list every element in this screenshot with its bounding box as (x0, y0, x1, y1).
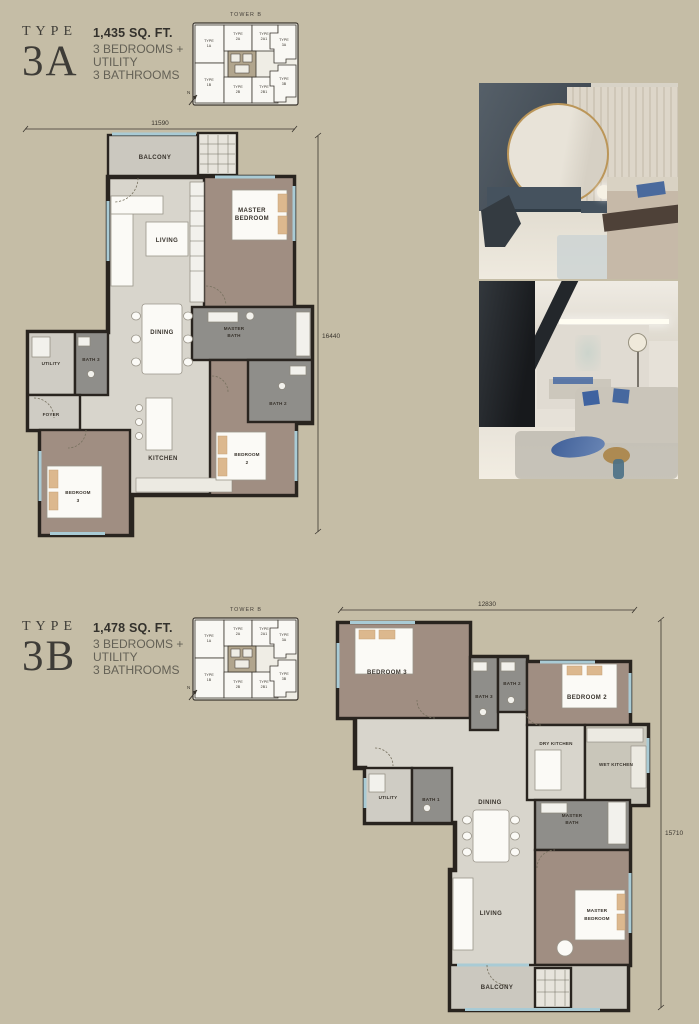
label-utility: UTILITY (42, 361, 61, 366)
unit-3b-code: 3B (282, 677, 287, 681)
toilet (480, 709, 487, 716)
floor-lamp-head (628, 333, 647, 352)
label-bedroom3: BEDROOM 3 (367, 670, 407, 676)
sink (501, 662, 515, 671)
stair-box (235, 660, 249, 668)
unit-3a-label: TYPE (279, 38, 289, 42)
unit-1a-code: 1A (207, 639, 212, 643)
lift-box (243, 54, 252, 62)
label-foyer: FOYER (43, 412, 60, 417)
unit-3a-code: 3A (282, 638, 287, 642)
kitchen-island (535, 750, 561, 790)
tower-label: TOWER B (230, 607, 262, 613)
vanity-sink (541, 803, 567, 813)
label-bath3: BATH 3 (82, 357, 100, 362)
living-room-photo (479, 281, 678, 479)
type-code-b: 3B (22, 635, 76, 678)
north-label: N (187, 90, 190, 95)
label-master-bedroom: MASTER (238, 208, 266, 214)
sofa-pillow (612, 388, 629, 404)
dim-right-3a: 16440 (322, 333, 340, 340)
sink (473, 662, 487, 671)
svg-text:BEDROOM: BEDROOM (584, 916, 609, 921)
unit-3b-label: TYPE (279, 672, 289, 676)
unit-1a-code: 1A (207, 44, 212, 48)
label-balcony: BALCONY (139, 155, 171, 161)
label-utility: UTILITY (379, 795, 398, 800)
washer (369, 774, 385, 792)
unit-1b-label: TYPE (204, 78, 214, 82)
dining-table (473, 810, 509, 862)
unit-2a1-label: TYPE (259, 32, 269, 36)
toilet (508, 697, 515, 704)
stair-box (235, 65, 249, 73)
unit-1b-code: 1B (207, 678, 212, 682)
label-dining: DINING (478, 800, 501, 806)
bathtub (608, 802, 626, 844)
label-master-bedroom: MASTER (587, 908, 608, 913)
wet-kitchen-counter (631, 746, 646, 788)
unit-3b-code: 3B (282, 82, 287, 86)
bathtub (296, 312, 310, 356)
label-living: LIVING (156, 238, 178, 244)
north-label: N (187, 685, 190, 690)
unit-3a-label: TYPE (279, 633, 289, 637)
label-bedroom2: BEDROOM (234, 452, 259, 457)
unit-2a-code: 2A (236, 37, 241, 41)
lift-box (231, 649, 240, 657)
unit-2b-code: 2B (236, 90, 241, 94)
toilet (88, 371, 95, 378)
lift-box (243, 649, 252, 657)
vanity-sink (208, 312, 238, 322)
bed (607, 191, 678, 279)
svg-text:BATH: BATH (565, 820, 579, 825)
tower-label: TOWER B (230, 12, 262, 18)
floorplan-3a: 11590 16440 (20, 116, 350, 550)
dining-table (142, 304, 182, 374)
toilet (424, 805, 431, 812)
label-master-bath: MASTER (224, 326, 245, 331)
unit-2b1-label: TYPE (259, 85, 269, 89)
label-bath2: BATH 2 (269, 401, 287, 406)
floorplan-3b: 12830 15710 (335, 598, 699, 1024)
dim-right-3b: 15710 (665, 830, 683, 837)
label-balcony: BALCONY (481, 985, 513, 991)
label-wet-kitchen: WET KITCHEN (599, 762, 634, 767)
unit-2b1-code: 2B1 (261, 685, 268, 689)
wardrobe (190, 182, 204, 302)
label-living: LIVING (480, 911, 502, 917)
dining-bench (553, 377, 593, 384)
glass-vase (613, 459, 624, 479)
unit-2b-code: 2B (236, 685, 241, 689)
label-bath1: BATH 1 (422, 797, 440, 802)
unit-2b-label: TYPE (233, 85, 243, 89)
dim-top-3b: 12830 (478, 601, 496, 608)
label-master-bath: MASTER (562, 813, 583, 818)
sofa-pillow (582, 390, 600, 406)
trellis (535, 968, 571, 1008)
room-bath1 (412, 768, 452, 823)
washer (32, 337, 50, 357)
sink (78, 337, 90, 346)
lift-box (231, 54, 240, 62)
dim-top-3a: 11590 (151, 120, 169, 127)
keyplan-3b: TOWER B TYPE 1A TYPE 2A TYPE 2A1 TYPE 3A… (186, 600, 310, 707)
unit-1b-label: TYPE (204, 673, 214, 677)
label-bedroom2: BEDROOM 2 (567, 695, 607, 701)
unit-2a-label: TYPE (233, 627, 243, 631)
label-kitchen: KITCHEN (148, 456, 177, 462)
sofa (111, 196, 163, 214)
unit-2a1-label: TYPE (259, 627, 269, 631)
toilet (246, 312, 254, 320)
unit-2b-label: TYPE (233, 680, 243, 684)
unit-1b-code: 1B (207, 83, 212, 87)
wall-art (575, 335, 601, 371)
keyplan-3a: TOWER B TYPE 1A TYPE 2A TYPE 2A1 TYPE 3A… (186, 5, 310, 112)
label-bath2: BATH 2 (503, 681, 521, 686)
cove-light (559, 319, 669, 324)
unit-3a-code: 3A (282, 43, 287, 47)
unit-3b-label: TYPE (279, 77, 289, 81)
svg-text:BATH: BATH (227, 333, 241, 338)
bedroom-photo (479, 83, 678, 279)
tv-console (453, 878, 473, 950)
svg-text:2: 2 (246, 460, 249, 465)
label-bath3: BATH 3 (475, 694, 493, 699)
type-code-a: 3A (22, 40, 79, 83)
lounge-chair (557, 940, 573, 956)
wet-kitchen-counter (587, 728, 643, 742)
unit-2a1-code: 2A1 (261, 37, 268, 41)
kitchen-island (146, 398, 172, 450)
svg-text:3: 3 (77, 498, 80, 503)
unit-2a-code: 2A (236, 632, 241, 636)
unit-2b1-code: 2B1 (261, 90, 268, 94)
unit-2b1-label: TYPE (259, 680, 269, 684)
label-bedroom3: BEDROOM (65, 490, 90, 495)
unit-1a-label: TYPE (204, 634, 214, 638)
sink (290, 366, 306, 375)
toilet (279, 383, 286, 390)
unit-1a-label: TYPE (204, 39, 214, 43)
unit-2a1-code: 2A1 (261, 632, 268, 636)
unit-2a-label: TYPE (233, 32, 243, 36)
svg-text:BEDROOM: BEDROOM (235, 216, 269, 222)
brochure-page: TYPE 3A 1,435 SQ. FT. 3 BEDROOMS + UTILI… (0, 0, 699, 1024)
label-dry-kitchen: DRY KITCHEN (539, 741, 573, 746)
label-dining: DINING (150, 330, 173, 336)
